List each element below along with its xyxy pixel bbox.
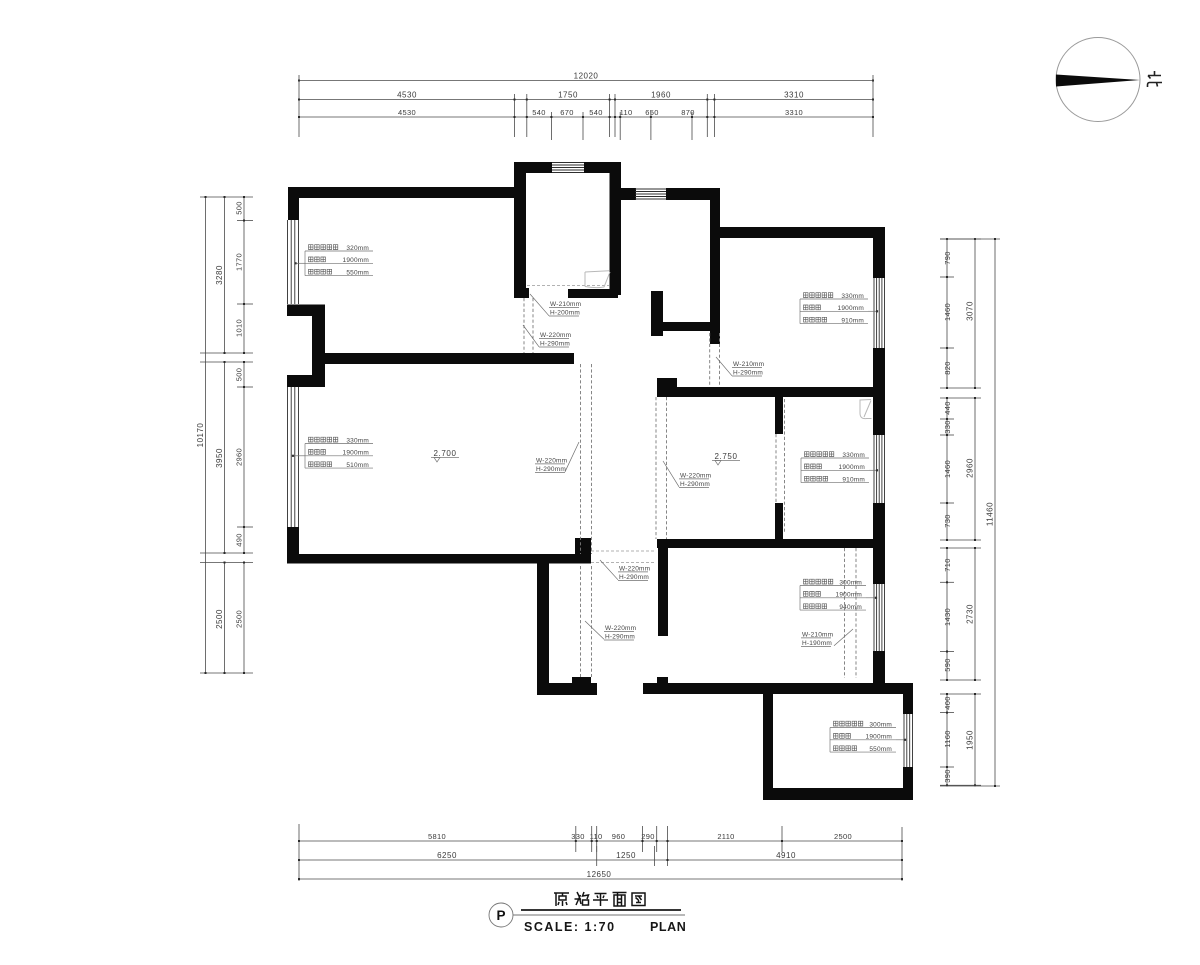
svg-text:W-220mm: W-220mm [605,625,636,632]
svg-text:2960: 2960 [235,448,244,466]
svg-text:4530: 4530 [398,108,416,117]
svg-text:H-290mm: H-290mm [540,341,570,348]
svg-text:H-290mm: H-290mm [680,481,710,488]
svg-text:820: 820 [943,361,952,374]
svg-text:W-220mm: W-220mm [536,458,567,465]
svg-text:12650: 12650 [587,870,612,879]
svg-text:330: 330 [571,832,584,841]
svg-text:H-190mm: H-190mm [802,640,832,647]
svg-text:PLAN: PLAN [650,920,686,934]
svg-text:2730: 2730 [966,604,975,624]
svg-text:2.700: 2.700 [433,449,456,458]
svg-text:12020: 12020 [574,72,599,81]
svg-text:1460: 1460 [943,303,952,321]
svg-text:540: 540 [589,108,602,117]
svg-text:H-200mm: H-200mm [550,310,580,317]
svg-text:590: 590 [943,658,952,671]
svg-text:6250: 6250 [437,851,457,860]
svg-text:3070: 3070 [966,301,975,321]
svg-text:W-210mm: W-210mm [802,632,833,639]
svg-text:440: 440 [943,401,952,414]
svg-text:3310: 3310 [785,108,803,117]
svg-text:330: 330 [943,420,952,433]
svg-text:500: 500 [235,201,244,214]
svg-text:11460: 11460 [986,502,995,526]
svg-text:P: P [496,908,505,923]
svg-text:490: 490 [235,533,244,546]
svg-text:290: 290 [641,832,654,841]
svg-text:1960: 1960 [651,91,671,100]
svg-text:W-210mm: W-210mm [550,301,581,308]
svg-text:W-220mm: W-220mm [680,473,711,480]
svg-text:2960: 2960 [966,458,975,478]
svg-text:W-210mm: W-210mm [733,361,764,368]
svg-text:H-290mm: H-290mm [733,370,763,377]
svg-text:4530: 4530 [397,91,417,100]
svg-text:1460: 1460 [943,460,952,478]
svg-text:790: 790 [943,251,952,264]
svg-text:1160: 1160 [943,730,952,747]
svg-text:4910: 4910 [776,851,796,860]
svg-text:1750: 1750 [558,91,578,100]
svg-text:870: 870 [681,108,694,117]
svg-text:110: 110 [620,108,633,117]
svg-text:2500: 2500 [235,610,244,628]
svg-text:2500: 2500 [834,832,852,841]
svg-text:2.750: 2.750 [714,452,737,461]
svg-text:H-290mm: H-290mm [619,574,649,581]
svg-text:730: 730 [943,514,952,527]
svg-text:390: 390 [943,769,952,782]
svg-text:3280: 3280 [215,265,224,285]
svg-text:1770: 1770 [235,253,244,271]
svg-text:2500: 2500 [215,609,224,629]
svg-text:3310: 3310 [784,91,804,100]
svg-text:540: 540 [532,108,545,117]
svg-text:10170: 10170 [196,423,205,448]
svg-text:H-290mm: H-290mm [605,634,635,641]
svg-text:670: 670 [560,108,573,117]
svg-text:W-220mm: W-220mm [619,566,650,573]
svg-text:W-220mm: W-220mm [540,332,571,339]
svg-text:710: 710 [943,558,952,571]
svg-text:5810: 5810 [428,832,446,841]
svg-text:SCALE: 1:70: SCALE: 1:70 [524,920,616,934]
svg-text:960: 960 [612,832,625,841]
svg-text:H-290mm: H-290mm [536,466,566,473]
svg-text:3950: 3950 [215,448,224,468]
svg-text:400: 400 [943,696,952,709]
svg-text:1010: 1010 [235,319,244,337]
svg-text:1250: 1250 [616,851,636,860]
svg-text:650: 650 [645,108,658,117]
svg-text:1950: 1950 [966,730,975,750]
svg-text:1430: 1430 [943,608,952,626]
svg-text:500: 500 [235,368,244,381]
svg-text:2110: 2110 [717,832,734,841]
